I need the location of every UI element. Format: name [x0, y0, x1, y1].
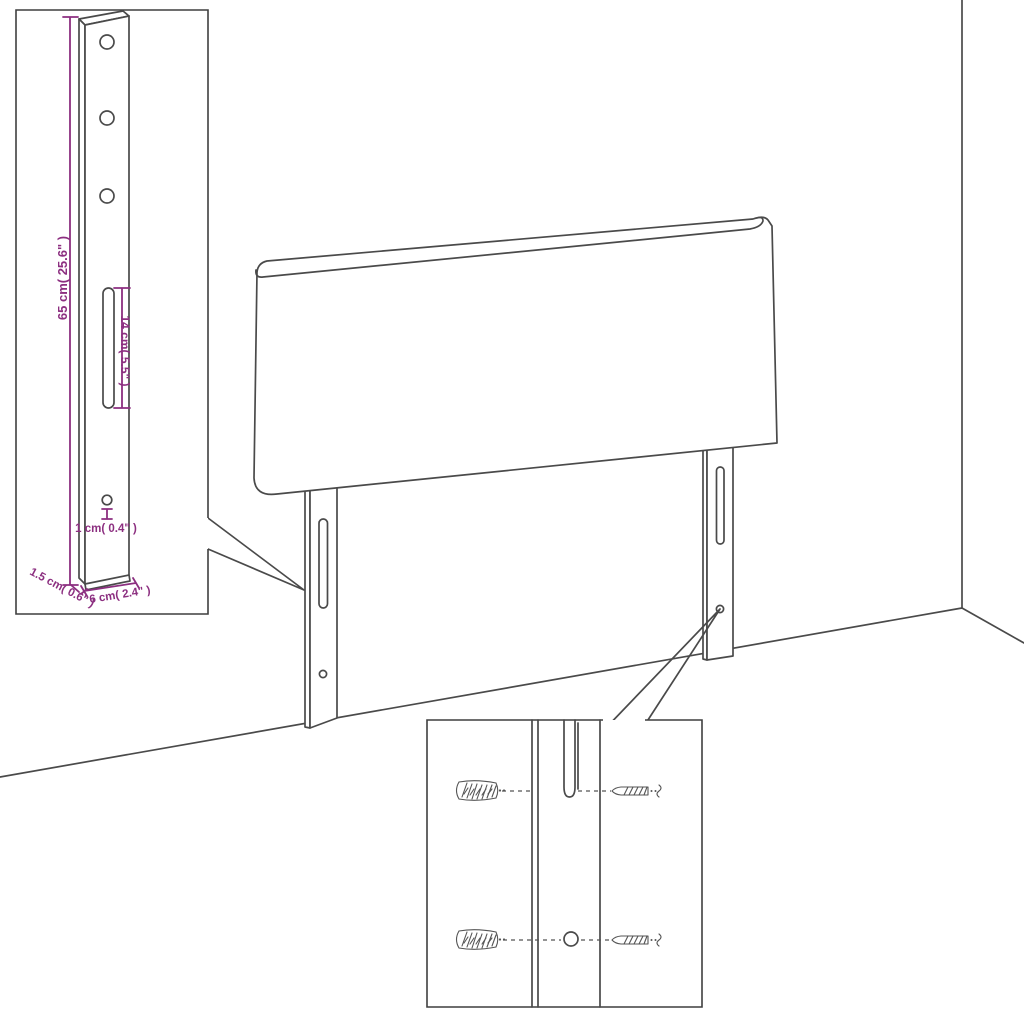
- dim-label-hole: 1 cm( 0.4" ): [75, 523, 137, 535]
- headboard-panel-outline: [254, 217, 777, 494]
- headboard-panel: [254, 217, 777, 494]
- floor-line-right: [962, 608, 1024, 643]
- dim-label-height: 65 cm( 25.6" ): [55, 236, 70, 320]
- diagram-page: 65 cm( 25.6" ) 14 cm( 5.5" ) 1 cm( 0.4" …: [0, 0, 1024, 1024]
- callout-mounting: [604, 609, 720, 730]
- bracket-side-face: [79, 19, 85, 584]
- inset-mounting-detail: [427, 720, 702, 1007]
- inset-bracket-detail: 65 cm( 25.6" ) 14 cm( 5.5" ) 1 cm( 0.4" …: [16, 10, 208, 614]
- headboard-leg-left: [305, 483, 337, 728]
- assembly-diagram: 65 cm( 25.6" ) 14 cm( 5.5" ) 1 cm( 0.4" …: [0, 0, 1024, 1024]
- callout-lines-mounting: [604, 609, 720, 730]
- callout-bracket: [208, 518, 304, 590]
- leg-right-front-face: [707, 440, 733, 660]
- dim-label-slot-length: 14 cm( 5.5" ): [118, 315, 132, 386]
- callout-lines-bracket: [208, 518, 304, 590]
